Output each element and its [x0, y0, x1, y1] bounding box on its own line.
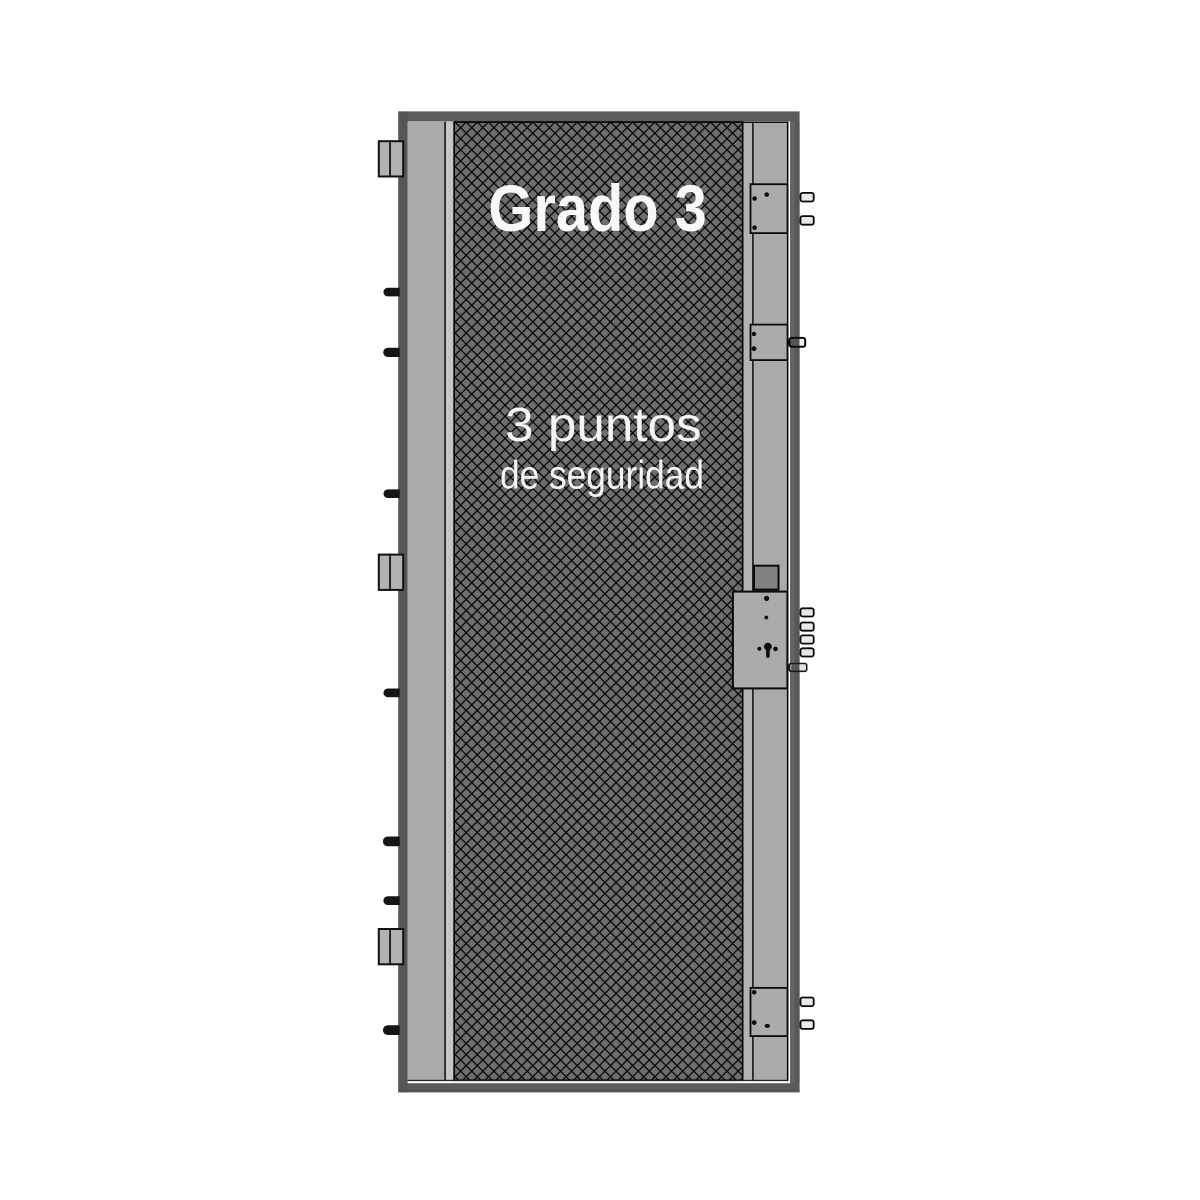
svg-text:3 puntos: 3 puntos: [505, 399, 702, 452]
svg-text:Grado 3: Grado 3: [488, 171, 707, 245]
svg-text:de seguridad: de seguridad: [500, 454, 704, 498]
